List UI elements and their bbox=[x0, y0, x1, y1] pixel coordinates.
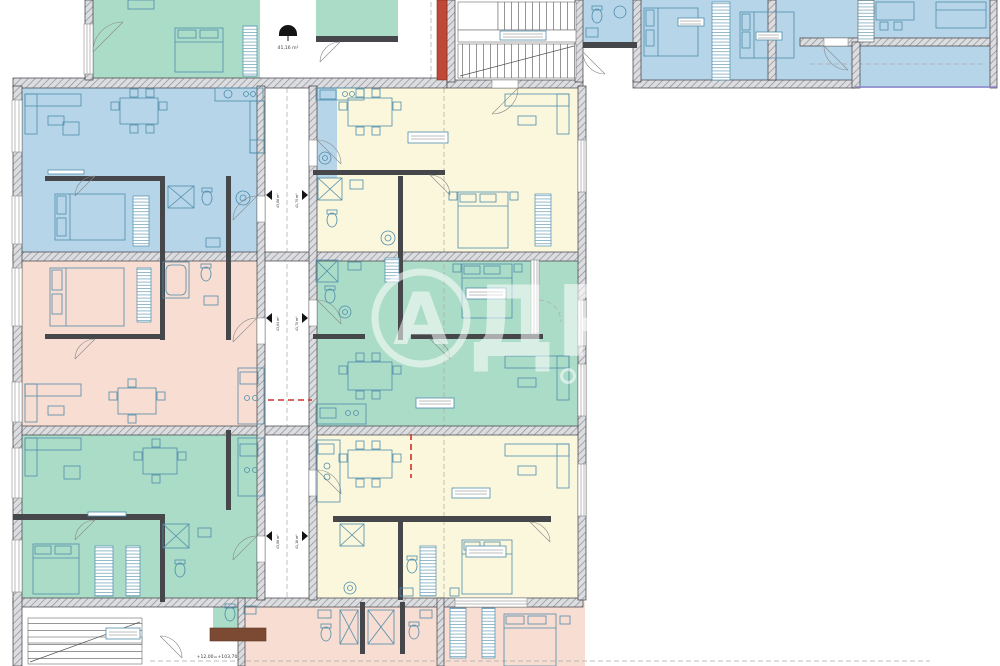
wardrobe-icon bbox=[137, 268, 151, 322]
window bbox=[12, 382, 22, 422]
area-label: 43,86 m² bbox=[276, 193, 280, 208]
entrance-area-marker: 41,16 m² bbox=[278, 25, 299, 51]
room-label bbox=[452, 488, 490, 498]
area-label: 43,84 m² bbox=[276, 316, 280, 331]
window bbox=[12, 448, 22, 498]
floor-plan-canvas: 41,16 m² 43,86 m² 41,70 m² 43,84 m² 41,7… bbox=[0, 0, 1000, 666]
room-label bbox=[466, 546, 506, 557]
window bbox=[455, 598, 527, 607]
wardrobe-icon bbox=[535, 194, 551, 246]
window bbox=[12, 268, 22, 326]
window bbox=[578, 140, 586, 192]
shaft bbox=[858, 0, 874, 42]
apartment-green-topleft bbox=[85, 0, 260, 80]
staircase-bottom bbox=[28, 618, 142, 664]
wardrobe-icon bbox=[243, 26, 257, 76]
stair-label bbox=[106, 628, 140, 639]
wardrobe-icon bbox=[126, 546, 140, 596]
window bbox=[12, 196, 22, 244]
wardrobe-icon bbox=[420, 546, 436, 596]
room-label bbox=[756, 32, 782, 40]
bathroom-green-top bbox=[316, 0, 398, 40]
staircase-top bbox=[458, 2, 576, 78]
fire-wall bbox=[437, 0, 447, 80]
watermark-letters: ДР bbox=[468, 266, 627, 380]
entrance-area-label: 41,16 m² bbox=[278, 45, 299, 51]
area-label: 41,70 m² bbox=[295, 193, 299, 208]
watermark-logo-letter: А bbox=[393, 277, 449, 361]
room-label bbox=[678, 18, 704, 26]
apartment-pink-bottom bbox=[238, 602, 585, 666]
window bbox=[12, 100, 22, 152]
arrow-right-icon bbox=[302, 531, 308, 541]
window bbox=[12, 540, 22, 592]
room-label bbox=[408, 132, 448, 143]
arrow-left-icon bbox=[266, 531, 272, 541]
watermark: А ДР bbox=[375, 266, 627, 383]
bathroom-blue-top bbox=[583, 0, 637, 44]
area-label: 41,16 m² bbox=[295, 534, 299, 549]
tv-icon bbox=[48, 170, 84, 174]
tv-icon bbox=[88, 512, 126, 516]
window bbox=[84, 24, 93, 74]
arrow-right-icon bbox=[302, 190, 308, 200]
wardrobe-icon bbox=[95, 546, 113, 596]
wardrobe-icon bbox=[712, 2, 730, 80]
window bbox=[578, 464, 586, 516]
stair-label bbox=[500, 31, 546, 40]
entry-mat bbox=[210, 628, 266, 641]
wardrobe-icon bbox=[482, 608, 495, 658]
room-label bbox=[416, 398, 454, 408]
area-label: 43,86 m² bbox=[276, 534, 280, 549]
area-label: 41,70 m² bbox=[295, 316, 299, 331]
wardrobe-icon bbox=[133, 196, 149, 246]
arrow-left-icon bbox=[266, 190, 272, 200]
wardrobe-icon bbox=[450, 608, 466, 658]
elevation-label: +12,00=+103,70 bbox=[197, 654, 238, 660]
umbrella-icon bbox=[279, 25, 297, 36]
floor-plan-page: 41,16 m² 43,86 m² 41,70 m² 43,84 m² 41,7… bbox=[0, 0, 1000, 666]
arrow-left-icon bbox=[266, 313, 272, 323]
arrow-right-icon bbox=[302, 313, 308, 323]
